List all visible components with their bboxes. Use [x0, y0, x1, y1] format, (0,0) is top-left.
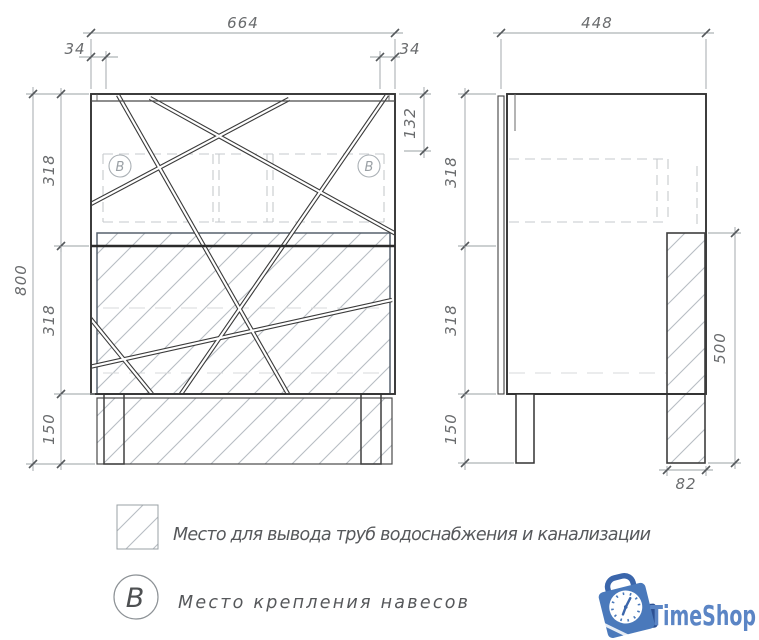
pipe-zone-side [667, 233, 705, 463]
dim-label-318-middle-front: 318 [40, 304, 58, 336]
dim-label-150-front: 150 [40, 413, 58, 445]
mount-marker-left-label: B [116, 160, 125, 175]
legend-mount-symbol: B [126, 583, 145, 614]
dim-label-448: 448 [581, 14, 613, 32]
dim-label-150-side: 150 [442, 413, 460, 445]
dim-label-82: 82 [675, 475, 696, 493]
leg-side [516, 394, 534, 463]
dim-label-318-upper-front: 318 [40, 154, 58, 186]
technical-drawing: B B 664 34 34 [0, 0, 759, 640]
logo-text: TimeShop [650, 599, 756, 632]
dim-label-318-upper-side: 318 [442, 156, 460, 188]
dim-label-800: 800 [12, 264, 30, 296]
drawing-sheet: B B 664 34 34 [0, 0, 759, 640]
mount-marker-right-label: B [365, 160, 374, 175]
pipe-zone-bottom [97, 398, 392, 464]
legend-pipe-label: Место для вывода труб водоснабжения и ка… [173, 525, 653, 545]
dim-label-132: 132 [401, 107, 419, 139]
door-panel-edge [498, 96, 504, 394]
dim-label-34-right: 34 [399, 40, 420, 58]
front-view-drawing: B B [89, 94, 396, 464]
dim-label-318-middle-side: 318 [442, 304, 460, 336]
hatch-swatch [117, 505, 158, 549]
dim-label-34-left: 34 [64, 40, 85, 58]
dim-label-500: 500 [711, 332, 729, 364]
dim-label-664: 664 [227, 14, 259, 32]
legend-mount-label: Место крепления навесов [178, 593, 470, 613]
